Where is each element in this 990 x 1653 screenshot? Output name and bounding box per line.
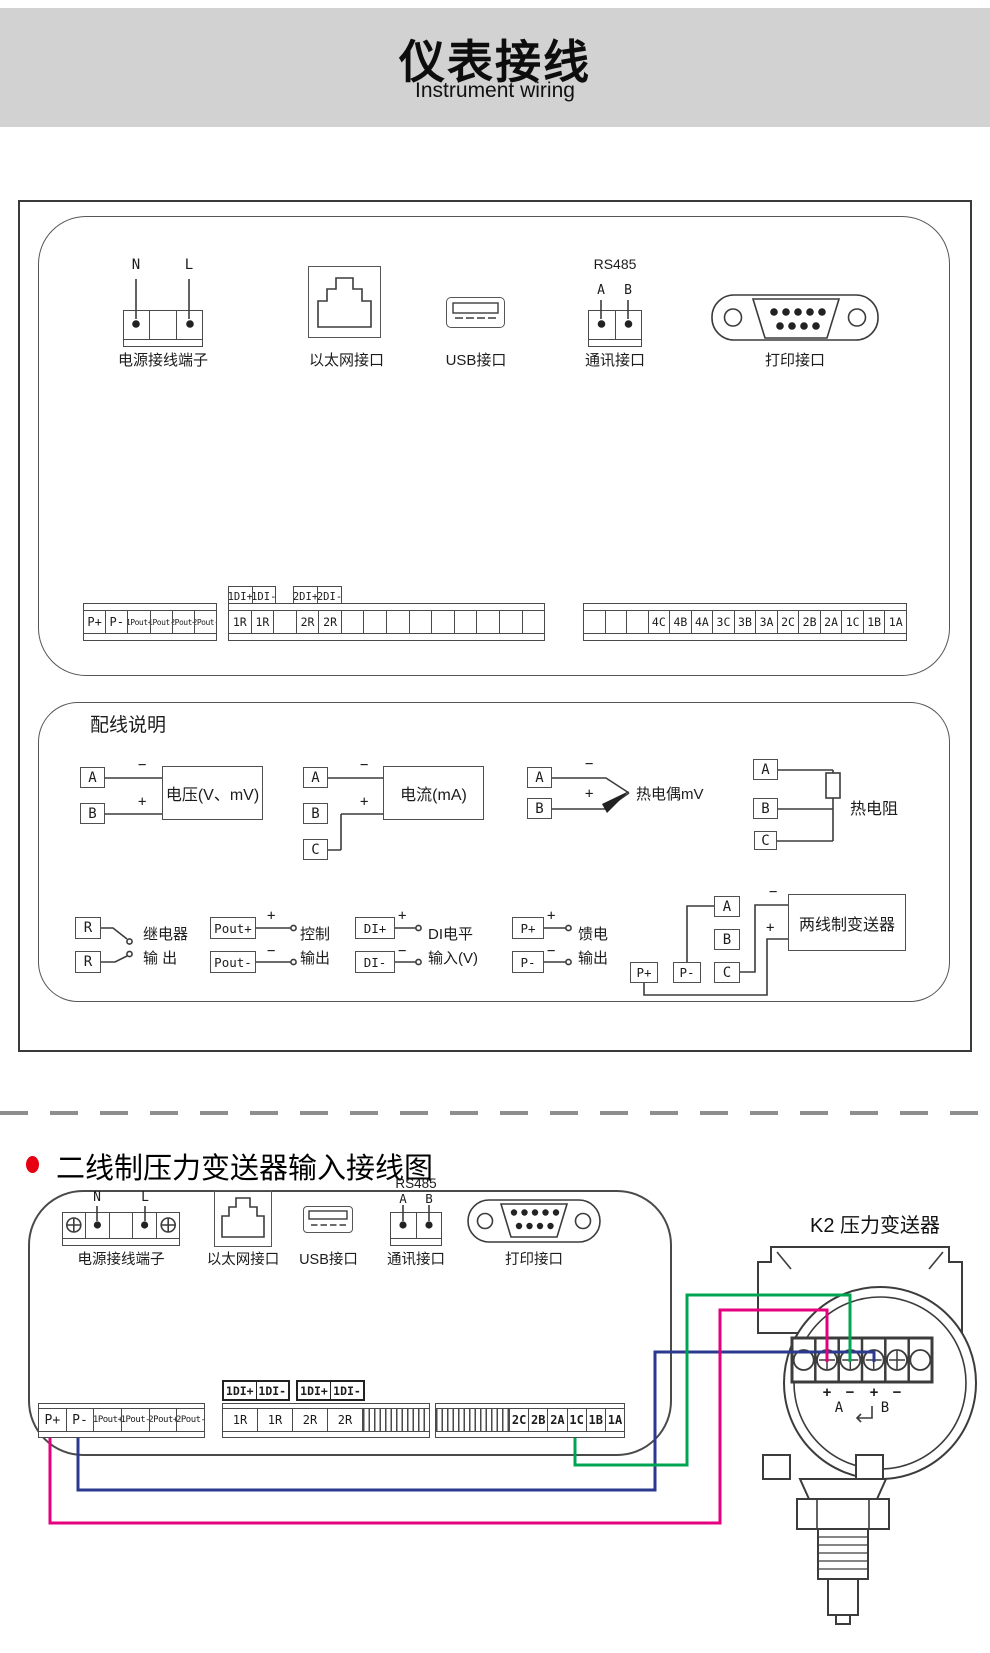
tx-terminal-b: B — [714, 929, 740, 950]
tx-device-box: 两线制变送器 — [788, 894, 906, 951]
tx-group-b-label: B — [878, 1400, 892, 1416]
voltage-minus: − — [138, 757, 146, 773]
section-divider — [0, 1111, 990, 1115]
di-plus: + — [398, 908, 406, 924]
b-rs485-cell — [391, 1213, 417, 1238]
terminal-cell — [500, 611, 523, 633]
power-cell — [177, 311, 202, 339]
tc-plus: + — [585, 786, 593, 802]
current-plus: + — [360, 794, 368, 810]
feed-caption-1: 馈电 — [578, 923, 608, 944]
ctrl-terminal-2: Pout- — [210, 951, 256, 973]
terminal-cell: 1R — [229, 611, 252, 633]
terminal-cell: 4B — [670, 611, 692, 633]
b-power-n-label: N — [89, 1190, 105, 1205]
tx-sign-3: + — [867, 1384, 881, 1401]
ctrl-minus: − — [267, 943, 275, 959]
tc-terminal-a: A — [527, 767, 552, 788]
terminal-strip-left: P+ P- 1Pout+ 1Pout- 2Pout+ 2Pout- — [83, 603, 217, 641]
terminal-cell — [364, 611, 387, 633]
feed-minus: − — [547, 943, 555, 959]
terminal-cell: 1Pout- — [151, 611, 173, 633]
terminal-cell: 3C — [713, 611, 735, 633]
terminal-cell — [410, 611, 433, 633]
b-power-caption: 电源接线端子 — [61, 1248, 181, 1269]
b-power-cell — [86, 1213, 109, 1238]
voltage-terminal-a: A — [80, 767, 105, 788]
feed-caption-2: 输出 — [578, 947, 608, 968]
power-cell — [150, 311, 176, 339]
b-power-cell — [133, 1213, 156, 1238]
usb-caption: USB接口 — [431, 349, 521, 370]
terminal-strip-middle: 1R 1R 2R 2R — [228, 603, 545, 641]
terminal-cell: 2A — [821, 611, 843, 633]
terminal-cell: 2Pout- — [177, 1409, 204, 1431]
tx-terminal-c: C — [714, 962, 740, 983]
terminal-cell: 1A — [885, 611, 906, 633]
current-terminal-c: C — [303, 839, 328, 860]
b-terminal-strip-middle: 1R 1R 2R 2R — [222, 1403, 430, 1438]
terminal-cell — [455, 611, 478, 633]
b-di1-minus-label: 1DI- — [257, 1382, 289, 1399]
current-terminal-a: A — [303, 767, 328, 788]
terminal-cell: 4C — [649, 611, 671, 633]
terminal-cell — [432, 611, 455, 633]
terminal-cell — [387, 611, 410, 633]
comm-caption: 通讯接口 — [570, 349, 660, 370]
b-power-terminal-strip — [62, 1212, 180, 1246]
terminal-cell: 2R — [328, 1409, 363, 1431]
rs485-a-label: A — [594, 283, 608, 298]
b-printer-caption: 打印接口 — [489, 1248, 579, 1269]
b-power-cell — [157, 1213, 179, 1238]
b-rs485-terminal-strip — [390, 1212, 442, 1246]
terminal-cell: 1B — [864, 611, 886, 633]
di-caption-1: DI电平 — [428, 923, 473, 944]
b-di2-minus-label: 1DI- — [331, 1382, 363, 1399]
terminal-cell: 1Pout+ — [94, 1409, 122, 1431]
b-usb-caption: USB接口 — [286, 1248, 371, 1269]
usb-port-icon — [446, 297, 505, 328]
rtd-terminal-c: C — [754, 831, 777, 850]
b-rs485-b-label: B — [422, 1191, 436, 1206]
tc-minus: − — [585, 756, 593, 772]
page-subtitle: Instrument wiring — [0, 79, 990, 103]
rtd-terminal-a: A — [753, 759, 778, 780]
ethernet-port-icon — [308, 266, 381, 338]
b-rs485-cell — [417, 1213, 442, 1238]
ctrl-caption-1: 控制 — [300, 923, 330, 944]
terminal-cell: P+ — [39, 1409, 67, 1431]
hatched-cells — [436, 1409, 510, 1431]
terminal-cell: 2R — [297, 611, 320, 633]
terminal-cell: 2B — [529, 1409, 548, 1431]
terminal-cell: 1C — [842, 611, 864, 633]
printer-caption: 打印接口 — [750, 349, 840, 370]
terminal-cell: 1Pout+ — [128, 611, 150, 633]
b-comm-caption: 通讯接口 — [371, 1248, 461, 1269]
terminal-cell — [606, 611, 628, 633]
terminal-cell: 4A — [692, 611, 714, 633]
power-terminal-strip — [123, 310, 203, 347]
di-terminal-1: DI+ — [355, 917, 395, 939]
power-n-label: N — [128, 257, 144, 273]
power-caption: 电源接线端子 — [103, 349, 223, 370]
terminal-cell: 2C — [510, 1409, 529, 1431]
current-minus: − — [360, 757, 368, 773]
relay-terminal-r2: R — [75, 951, 101, 973]
terminal-cell — [584, 611, 606, 633]
terminal-cell: 2Pout+ — [173, 611, 195, 633]
tx-minus: − — [769, 884, 777, 900]
b-di1-label-box: 1DI+ 1DI- — [222, 1380, 290, 1401]
b-ethernet-caption: 以太网接口 — [198, 1248, 288, 1269]
tx-terminal-a: A — [714, 896, 740, 917]
page: 仪表接线 Instrument wiring N L 电源接线端子 以太网接口 … — [0, 0, 990, 1653]
power-cell — [124, 311, 150, 339]
feed-terminal-1: P+ — [512, 917, 544, 939]
rs485-cell — [616, 311, 642, 339]
channel-arrow-icon — [857, 1406, 872, 1422]
terminal-strip-right: 4C 4B 4A 3C 3B 3A 2C 2B 2A 1C 1B 1A — [583, 603, 907, 641]
terminal-cell — [477, 611, 500, 633]
b-ethernet-port-icon — [214, 1190, 272, 1247]
pressure-transmitter-icon — [758, 1247, 976, 1624]
tx-terminal-p2: P- — [673, 962, 701, 983]
b-terminal-strip-left: P+ P- 1Pout+ 1Pout- 2Pout+ 2Pout- — [38, 1403, 205, 1438]
terminal-cell: 2B — [799, 611, 821, 633]
tx-group-a-label: A — [832, 1400, 846, 1416]
voltage-plus: + — [138, 794, 146, 810]
power-l-label: L — [181, 257, 197, 273]
terminal-cell: P- — [67, 1409, 95, 1431]
b-power-cell — [110, 1213, 133, 1238]
terminal-cell: 1Pout- — [122, 1409, 150, 1431]
rs485-terminal-strip — [588, 310, 642, 347]
terminal-cell — [274, 611, 297, 633]
terminal-cell: 1R — [258, 1409, 293, 1431]
terminal-cell — [523, 611, 545, 633]
b-terminal-strip-right: 2C 2B 2A 1C 1B 1A — [435, 1403, 625, 1438]
relay-caption-1: 继电器 — [143, 923, 188, 944]
terminal-cell: 1C — [568, 1409, 587, 1431]
b-di2-label-box: 1DI+ 1DI- — [296, 1380, 365, 1401]
b-rs485-a-label: A — [396, 1191, 410, 1206]
di-terminal-2: DI- — [355, 951, 395, 973]
rs485-cell — [589, 311, 616, 339]
tc-label: 热电偶mV — [636, 783, 704, 804]
rtd-label: 热电阻 — [850, 795, 898, 819]
terminal-cell: 1R — [252, 611, 275, 633]
current-terminal-b: B — [303, 803, 328, 824]
tx-sign-4: − — [890, 1384, 904, 1401]
tx-sign-1: + — [820, 1384, 834, 1401]
current-device-box: 电流(mA) — [383, 766, 484, 820]
tx-plus: + — [766, 920, 774, 936]
terminal-cell: 2C — [778, 611, 800, 633]
feed-terminal-2: P- — [512, 951, 544, 973]
ctrl-plus: + — [267, 908, 275, 924]
ctrl-caption-2: 输出 — [300, 947, 330, 968]
ctrl-terminal-1: Pout+ — [210, 917, 256, 939]
feed-plus: + — [547, 908, 555, 924]
b-rs485-title: RS485 — [389, 1176, 443, 1191]
b-usb-port-icon — [303, 1206, 353, 1233]
terminal-cell: 1A — [606, 1409, 624, 1431]
b-di2-plus-label: 1DI+ — [298, 1382, 331, 1399]
terminal-cell: 2R — [319, 611, 342, 633]
voltage-device-box: 电压(V、mV) — [162, 766, 263, 820]
ethernet-caption: 以太网接口 — [299, 349, 394, 370]
terminal-cell: P+ — [84, 611, 106, 633]
terminal-cell: 1R — [223, 1409, 258, 1431]
hatched-cells — [363, 1409, 429, 1431]
di-minus: − — [398, 943, 406, 959]
terminal-cell — [342, 611, 365, 633]
b-power-cell — [63, 1213, 86, 1238]
terminal-cell — [627, 611, 649, 633]
wiring-title: 配线说明 — [90, 710, 166, 737]
rtd-terminal-b: B — [753, 798, 778, 819]
terminal-cell: 2R — [293, 1409, 328, 1431]
terminal-cell: 2A — [548, 1409, 567, 1431]
b-di1-plus-label: 1DI+ — [224, 1382, 257, 1399]
terminal-cell: 2Pout- — [195, 611, 216, 633]
terminal-cell: 1B — [587, 1409, 606, 1431]
tx-sign-2: − — [843, 1384, 857, 1401]
di-caption-2: 输入(V) — [428, 947, 478, 968]
terminal-cell: 3B — [735, 611, 757, 633]
relay-caption-2: 输 出 — [143, 947, 177, 968]
bottom-heading: 二线制压力变送器输入接线图 — [56, 1145, 433, 1187]
tx-terminal-p1: P+ — [630, 962, 658, 983]
terminal-cell: 3A — [756, 611, 778, 633]
k2-transmitter-title: K2 压力变送器 — [790, 1209, 960, 1238]
bullet-icon — [26, 1156, 39, 1173]
terminal-cell: P- — [106, 611, 128, 633]
terminal-cell: 2Pout+ — [150, 1409, 178, 1431]
relay-terminal-r1: R — [75, 917, 101, 939]
rs485-title: RS485 — [588, 256, 642, 272]
rs485-b-label: B — [621, 283, 635, 298]
voltage-terminal-b: B — [80, 803, 105, 824]
tc-terminal-b: B — [527, 798, 552, 819]
b-power-l-label: L — [137, 1190, 153, 1205]
